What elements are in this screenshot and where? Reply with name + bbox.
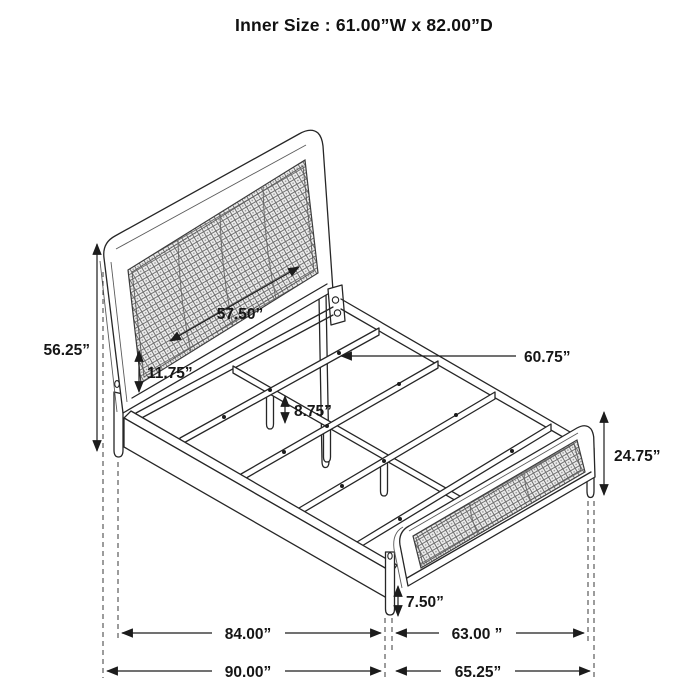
dimension-label-footboard-inner-width: 63.00 ” <box>452 626 503 643</box>
screw-dot <box>382 459 386 463</box>
headboard-leg-peg-hole <box>115 381 120 388</box>
dimension-label-inner-length: 84.00” <box>225 626 272 643</box>
bed-dimension-diagram-page: Inner Size : 61.00”W x 82.00”D <box>0 0 700 700</box>
screw-dot <box>268 388 272 392</box>
screw-dot <box>454 413 458 417</box>
bracket-hole-bottom <box>334 310 340 316</box>
screw-dot <box>325 424 329 428</box>
screw-dot <box>398 517 402 521</box>
dimension-label-under-headboard-clearance: 11.75” <box>147 365 193 382</box>
dimension-label-headboard-inner-width: 57.50” <box>217 306 264 323</box>
bracket-hole-top <box>332 297 338 303</box>
dimension-label-headboard-height: 56.25” <box>43 342 90 359</box>
screw-dot <box>282 450 286 454</box>
screw-dot <box>340 484 344 488</box>
screw-dot <box>510 449 514 453</box>
screw-dot <box>397 382 401 386</box>
rail-bracket <box>328 285 345 325</box>
bed-dimension-diagram: Inner Size : 61.00”W x 82.00”D <box>0 0 700 700</box>
dimension-label-footboard-height: 24.75” <box>614 448 661 465</box>
diagram-title: Inner Size : 61.00”W x 82.00”D <box>235 15 493 35</box>
dimension-label-slat-support-leg: 8.75” <box>294 403 332 420</box>
dimension-label-overall-length: 90.00” <box>225 664 272 681</box>
footboard-front-left-leg <box>386 552 395 615</box>
dimension-label-overall-width: 65.25” <box>455 664 502 681</box>
center-support-leg-3 <box>381 463 388 496</box>
dimension-label-footboard-leg-height: 7.50” <box>406 594 444 611</box>
screw-dot <box>337 351 341 355</box>
dimension-label-slat-length: 60.75” <box>524 349 571 366</box>
footboard-leg-peg-hole <box>388 553 392 559</box>
screw-dot <box>222 415 226 419</box>
center-support-leg-1 <box>267 392 274 429</box>
